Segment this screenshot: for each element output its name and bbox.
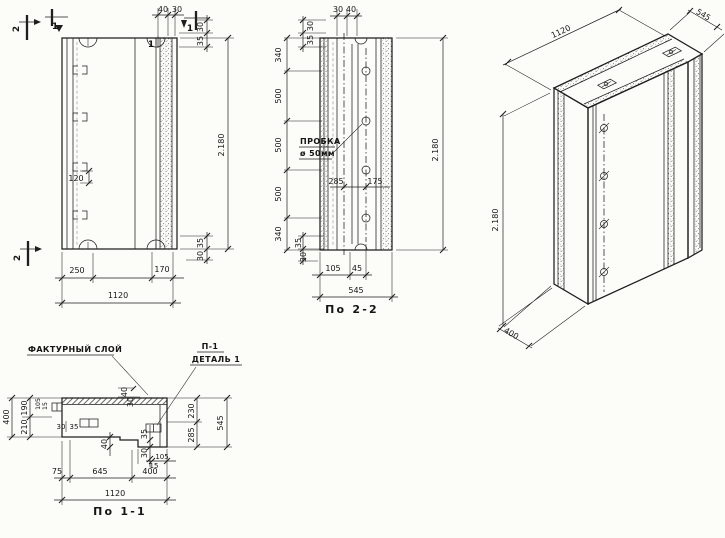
dim-lt-35: 35: [306, 35, 315, 45]
section-1-1-view: ФАКТУРНЫЙ СЛОЙ П-1 ДЕТАЛЬ 1 400 190 210 …: [2, 342, 242, 518]
dim-width-545: 545: [348, 286, 363, 295]
dim-tiny-105: 105: [35, 398, 42, 410]
dim-depth-545: 545: [694, 7, 712, 23]
section-marks: 2 1 1 1 2: [12, 9, 210, 266]
detail-ref-label: П-1: [202, 342, 219, 351]
dim-height-2180: 2.180: [217, 134, 226, 157]
caption-po-2-2: По 2-2: [325, 303, 379, 316]
dim-mid-40: 40: [120, 387, 129, 397]
loop-ticks: [88, 38, 156, 249]
dim-hook-30: 30: [57, 423, 66, 431]
plug-label: ПРОБКА: [300, 137, 341, 146]
dim-mid-285: 285: [328, 177, 343, 186]
drawing-canvas: 2 1 1 1 2 40 30 30 35 2.180 35 30 120 25…: [0, 0, 725, 538]
anchor-hooks: [73, 66, 87, 219]
dim-rt-30: 30: [196, 22, 205, 32]
dim-top-30: 30: [172, 5, 182, 14]
dim-bot-1120: 1120: [105, 489, 125, 498]
elevation-view: 2 1 1 1 2 40 30 30 35 2.180 35 30 120 25…: [12, 5, 234, 308]
dim-step-30: 30: [140, 448, 149, 458]
rib-stipple-band: [161, 39, 173, 250]
dim-rt-35: 35: [196, 36, 205, 46]
section-mark-1-right: 1: [187, 24, 193, 34]
front-face-lines: [593, 69, 674, 302]
dim-right-230: 230: [187, 403, 196, 418]
dim-left-210: 210: [20, 419, 29, 434]
section-mark-1-edge: 1: [148, 40, 154, 50]
dim-lt-30: 30: [306, 21, 315, 31]
dim-tiny-15: 15: [42, 402, 49, 410]
dim-bot-645: 645: [92, 467, 107, 476]
dim-bot-45: 45: [352, 264, 362, 273]
left-rib-stipple: [558, 91, 564, 291]
texture-layer-hatch: [63, 399, 167, 405]
dim-rb-30: 30: [196, 251, 205, 261]
dim-top-40: 40: [346, 5, 356, 14]
top-edge-stipple: [554, 34, 672, 92]
right-rib-stipple: [668, 69, 674, 268]
dim-bot-105: 105: [325, 264, 340, 273]
dim-rb-35: 35: [196, 238, 205, 248]
dim-bot-75: 75: [52, 467, 62, 476]
dim-seg-500a: 500: [274, 88, 283, 103]
texture-layer-label: ФАКТУРНЫЙ СЛОЙ: [28, 343, 122, 354]
plug-diameter-label: ø 50мм: [300, 149, 335, 158]
dim-loop-120: 120: [68, 174, 83, 183]
dim-seg-340a: 340: [274, 47, 283, 62]
dim-hook-35: 35: [70, 423, 79, 431]
dim-left-400: 400: [2, 409, 11, 424]
lifting-loop: [79, 38, 165, 249]
dim-height-2180: 2.180: [431, 139, 440, 162]
detail-name-label: ДЕТАЛЬ 1: [192, 355, 241, 364]
dim-left-190: 190: [20, 400, 29, 415]
drawing-sheet: 2 1 1 1 2 40 30 30 35 2.180 35 30 120 25…: [0, 0, 725, 538]
side-rib-stipple: [694, 56, 700, 255]
lifting-loop: [355, 38, 367, 250]
dim-right-285: 285: [187, 427, 196, 442]
dim-bot-400: 400: [142, 467, 157, 476]
dim-step-35: 35: [140, 429, 149, 439]
dim-bot-170: 170: [154, 265, 169, 274]
montage-hook: [52, 403, 62, 411]
extension-lines: [62, 8, 234, 308]
dim-lb-30: 30: [299, 252, 308, 262]
caption-po-1-1: По 1-1: [93, 505, 147, 518]
dim-mid-30: 30: [126, 397, 135, 407]
dim-seg-500c: 500: [274, 186, 283, 201]
panel-inner-lines: [67, 38, 172, 249]
dim-bot-250: 250: [69, 266, 84, 275]
dim-height-2180: 2.180: [491, 209, 500, 232]
dimension-ticks: [59, 12, 231, 306]
dim-mid-175: 175: [367, 177, 382, 186]
section-mark-2-top: 2: [12, 26, 22, 32]
top-face: [554, 34, 702, 108]
dim-top-40: 40: [158, 5, 168, 14]
section-mark-1-top: 1: [52, 22, 58, 32]
dim-right-545: 545: [216, 415, 225, 430]
dim-bot-1120: 1120: [108, 291, 128, 300]
dim-step-105: 105: [155, 453, 168, 461]
dim-top-30: 30: [333, 5, 343, 14]
dim-seg-500b: 500: [274, 137, 283, 152]
dim-lb-35: 35: [294, 238, 303, 248]
dim-step-40: 40: [100, 439, 109, 449]
dimension-ticks: [497, 7, 720, 349]
dim-foot-400: 400: [502, 326, 520, 341]
section-2-2-view: 30 40 30 35 340 500 500 500 340 ПРОБКА ø…: [274, 5, 448, 316]
right-rib-stipple: [382, 39, 392, 250]
center-lines: [344, 33, 366, 255]
dim-seg-340b: 340: [274, 226, 283, 241]
isometric-view: 1120 545 2.180 400: [491, 7, 724, 349]
section-mark-2-bottom: 2: [13, 255, 23, 261]
